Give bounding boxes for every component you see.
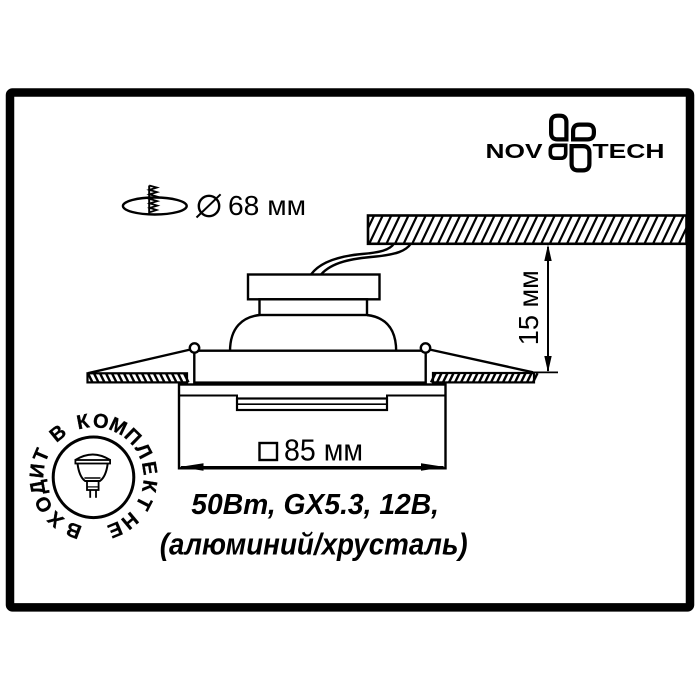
svg-text:И: И — [26, 463, 49, 480]
svg-text:85 мм: 85 мм — [284, 433, 363, 468]
svg-text:50Вт, GX5.3, 12В,: 50Вт, GX5.3, 12В, — [191, 489, 439, 521]
svg-text:15 мм: 15 мм — [513, 270, 544, 345]
svg-text:(алюминий/хрусталь): (алюминий/хрусталь) — [160, 527, 468, 561]
svg-text:NOV: NOV — [486, 141, 544, 163]
svg-text:68 мм: 68 мм — [228, 190, 306, 221]
svg-text:TECH: TECH — [593, 141, 665, 163]
